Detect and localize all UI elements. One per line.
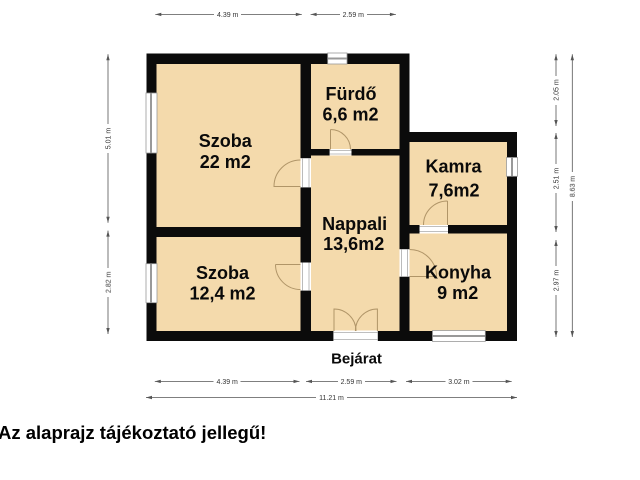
svg-text:13,6m2: 13,6m2 xyxy=(323,234,384,254)
svg-text:4.39 m: 4.39 m xyxy=(217,12,239,19)
svg-text:Kamra: Kamra xyxy=(425,157,482,177)
svg-text:2.05 m: 2.05 m xyxy=(554,79,561,101)
svg-text:2.59 m: 2.59 m xyxy=(343,12,365,19)
svg-text:11.21 m: 11.21 m xyxy=(319,395,344,402)
svg-text:8.63 m: 8.63 m xyxy=(570,176,577,198)
svg-text:Fürdő: Fürdő xyxy=(326,84,377,104)
svg-text:Szoba: Szoba xyxy=(199,131,253,151)
svg-text:12,4 m2: 12,4 m2 xyxy=(189,284,255,304)
svg-text:5.01 m: 5.01 m xyxy=(106,128,113,150)
svg-text:Szoba: Szoba xyxy=(196,263,250,283)
svg-text:Az alaprajz tájékoztató jelleg: Az alaprajz tájékoztató jellegű! xyxy=(0,422,266,443)
svg-text:2.51 m: 2.51 m xyxy=(554,168,561,190)
svg-text:4.39 m: 4.39 m xyxy=(216,379,238,386)
svg-text:Nappali: Nappali xyxy=(322,214,387,234)
svg-text:3.02 m: 3.02 m xyxy=(448,379,470,386)
svg-text:Bejárat: Bejárat xyxy=(331,350,382,367)
svg-text:2.97 m: 2.97 m xyxy=(554,270,561,292)
svg-text:2.59 m: 2.59 m xyxy=(341,379,363,386)
svg-text:2.82 m: 2.82 m xyxy=(106,271,113,293)
svg-text:6,6 m2: 6,6 m2 xyxy=(322,105,378,125)
svg-text:Konyha: Konyha xyxy=(425,262,492,282)
svg-text:22 m2: 22 m2 xyxy=(200,152,251,172)
svg-text:7,6m2: 7,6m2 xyxy=(428,181,479,201)
svg-text:9 m2: 9 m2 xyxy=(437,283,478,303)
